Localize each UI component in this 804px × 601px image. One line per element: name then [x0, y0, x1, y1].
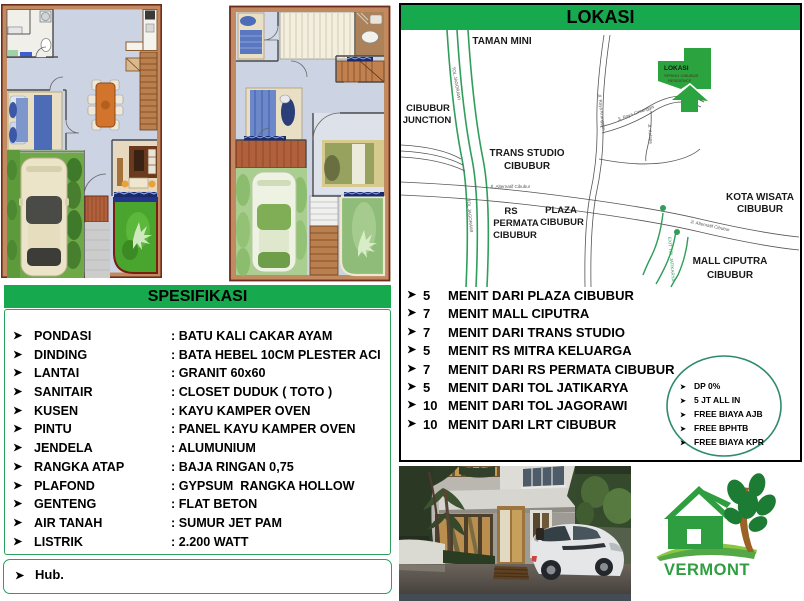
svg-text:MALL CIPUTRA: MALL CIPUTRA [693, 256, 768, 267]
svg-text:FREE BIAYA AJB: FREE BIAYA AJB [694, 409, 763, 419]
svg-text:PERMATA: PERMATA [493, 218, 539, 229]
svg-text:Jl. Kelapa: Jl. Kelapa [647, 124, 654, 145]
svg-text:DP 0%: DP 0% [694, 381, 721, 391]
svg-text:➤: ➤ [680, 398, 686, 405]
svg-text:KOTA WISATA: KOTA WISATA [726, 192, 794, 203]
svg-text:Jl. Raya Kranggan: Jl. Raya Kranggan [597, 94, 607, 132]
svg-text:5 JT ALL IN: 5 JT ALL IN [694, 395, 740, 405]
svg-text:➤: ➤ [680, 384, 686, 391]
svg-text:FREE BPHTB: FREE BPHTB [694, 423, 748, 433]
svg-text:JUNCTION: JUNCTION [403, 115, 452, 126]
svg-text:LOKASI: LOKASI [664, 65, 689, 72]
svg-text:RS: RS [504, 206, 517, 217]
svg-text:➤: ➤ [680, 426, 686, 433]
svg-text:Jl. Alternatif Cibubur: Jl. Alternatif Cibubur [490, 184, 531, 189]
svg-text:CIBUBUR: CIBUBUR [493, 230, 537, 241]
svg-text:Jl. Raya Cimanggis: Jl. Raya Cimanggis [617, 104, 656, 122]
svg-text:RESIDENCE: RESIDENCE [668, 78, 692, 83]
svg-text:VERMONT: VERMONT [664, 561, 750, 579]
svg-text:CIBUBUR: CIBUBUR [707, 270, 754, 281]
svg-text:CIBUBUR: CIBUBUR [504, 161, 551, 172]
svg-text:PLAZA: PLAZA [545, 205, 577, 216]
svg-text:CIBUBUR: CIBUBUR [406, 103, 450, 114]
svg-text:FREE BIAYA KPR: FREE BIAYA KPR [694, 437, 764, 447]
svg-text:➤: ➤ [680, 412, 686, 419]
svg-text:CIBUBUR: CIBUBUR [737, 204, 784, 215]
svg-text:CIBUBUR: CIBUBUR [540, 217, 584, 228]
svg-text:TRANS STUDIO: TRANS STUDIO [490, 148, 565, 159]
svg-text:TAMAN MINI: TAMAN MINI [472, 36, 531, 47]
svg-text:➤: ➤ [680, 440, 686, 447]
